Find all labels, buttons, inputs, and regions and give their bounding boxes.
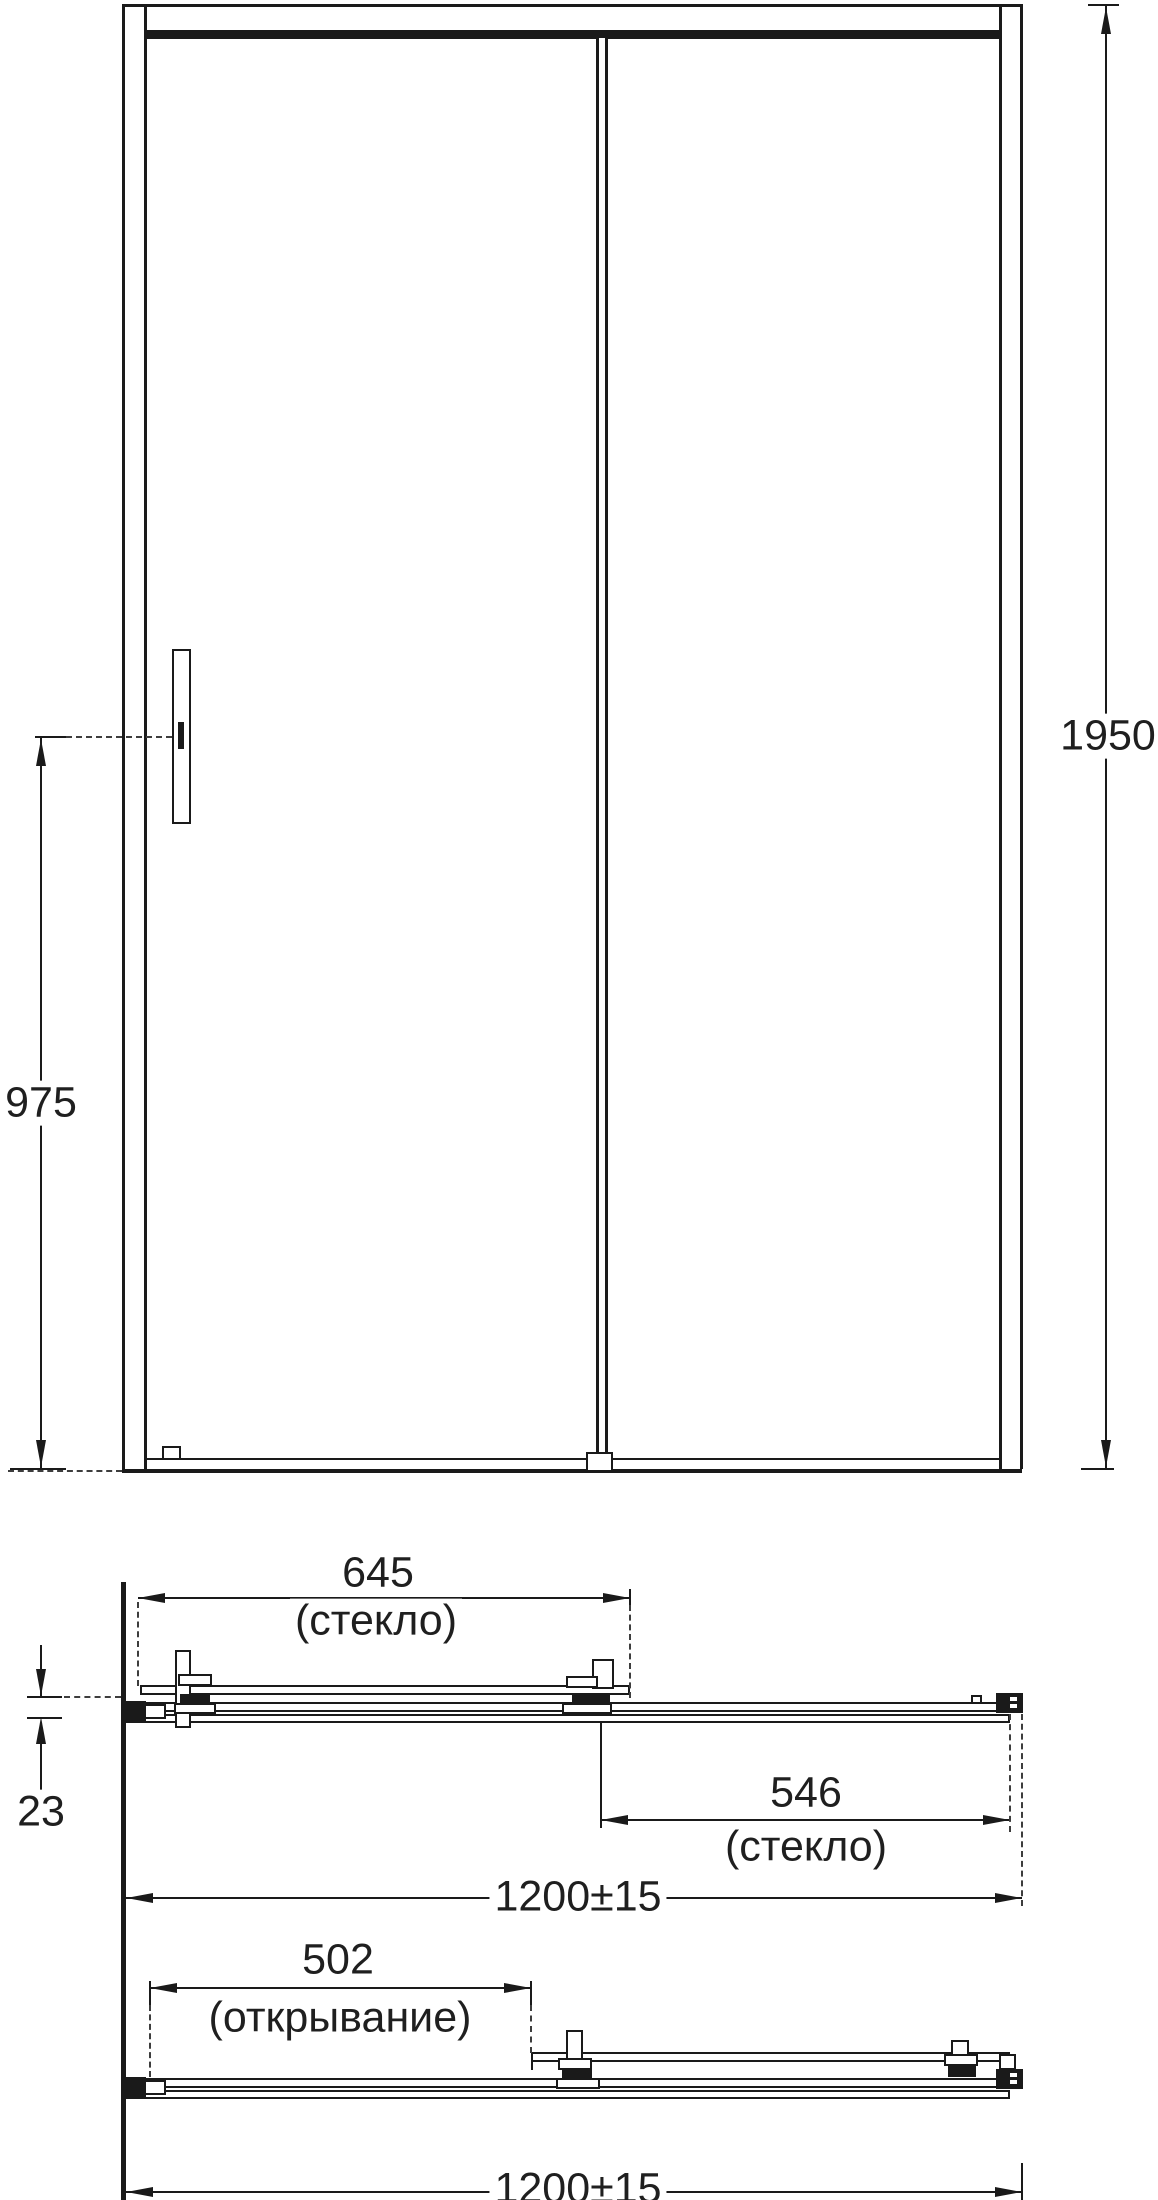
dim-502-arrow-right	[504, 1983, 531, 1993]
dim-1200-closed-arrow-right	[995, 1893, 1022, 1903]
dim-1200-open-arrow-left	[126, 2187, 153, 2197]
bottom-rail-top-line	[146, 1458, 999, 1460]
dim-645-ext-right-dashed	[629, 1605, 631, 1698]
dim-1200-open-arrow-right	[995, 2187, 1022, 2197]
dim-23-lower-line	[40, 1744, 42, 1790]
dim-label-546-note: (стекло)	[720, 1825, 892, 1870]
dim-645-ext-right-tick	[629, 1589, 631, 1605]
dim-23-arrow-down	[36, 1669, 46, 1696]
open-sliding-glass-edge-tick	[531, 2052, 533, 2070]
dim-502-ext-right-dashed	[530, 2005, 532, 2053]
dim-label-1200-closed: 1200±15	[489, 1875, 666, 1920]
dim-546-arrow-right	[983, 1815, 1010, 1825]
open-end-cap-notch-1	[1010, 2073, 1017, 2077]
dim-label-546: 546	[765, 1771, 847, 1816]
closed-fixed-glass-bar	[126, 1714, 1010, 1723]
dim-label-645-note: (стекло)	[290, 1599, 462, 1644]
left-wall-profile-outer-line	[122, 4, 125, 1472]
dim-23-upper-tick	[27, 1696, 62, 1698]
open-right-end-cap	[996, 2069, 1023, 2089]
right-wall-profile-inner-line	[999, 4, 1002, 1469]
closed-right-end-cap	[996, 1693, 1023, 1713]
dim-502-ext-left-solid	[149, 1981, 151, 2005]
open-fixed-glass-bar	[126, 2090, 1010, 2099]
dim-label-1950: 1950	[1055, 714, 1158, 759]
closed-left-roller-top	[178, 1674, 212, 1686]
dim-1950-bottom-tick	[1081, 1468, 1114, 1470]
open-end-step-block	[999, 2054, 1016, 2070]
closed-wall-bracket-clamp	[144, 1704, 166, 1719]
front-top-line	[122, 4, 1022, 7]
dim-label-645: 645	[337, 1551, 419, 1596]
handle-centerline-dashed	[66, 736, 172, 738]
panel-divider-profile	[596, 38, 608, 1459]
door-guide-foot-block	[162, 1446, 181, 1460]
closed-end-cap-notch-1	[1010, 1697, 1017, 1701]
closed-left-roller-clip	[175, 1650, 191, 1728]
door-handle-grip	[178, 722, 184, 749]
dim-546-line	[601, 1819, 1010, 1821]
open-right-roller-body	[948, 2065, 976, 2077]
closed-right-roller-base	[562, 1703, 612, 1714]
open-left-roller-base	[556, 2078, 600, 2089]
open-end-cap-notch-2	[1010, 2080, 1017, 2084]
dim-1200-closed-arrow-left	[126, 1893, 153, 1903]
left-wall-profile-inner-line	[144, 4, 147, 1472]
dim-546-ext-left-solid	[600, 1722, 602, 1828]
dim-502-ext-left-dashed	[149, 2005, 151, 2077]
dim-label-502: 502	[297, 1938, 379, 1983]
dim-546-ext-right-dashed	[1009, 1714, 1011, 1832]
dim-1950-arrow-up	[1101, 7, 1111, 34]
dim-546-arrow-left	[601, 1815, 628, 1825]
dim-645-arrow-left	[138, 1593, 165, 1603]
open-wall-bracket	[126, 2077, 146, 2098]
open-sliding-glass-bar	[531, 2052, 1010, 2062]
closed-end-step-block	[971, 1695, 982, 1704]
dim-23-reference-dashed	[64, 1696, 121, 1698]
divider-bottom-guide-block	[586, 1452, 613, 1472]
dim-label-502-note: (открывание)	[204, 1996, 477, 2041]
floor-reference-dashed	[8, 1470, 122, 1472]
wall-line	[121, 1582, 126, 2200]
top-track-bar	[147, 30, 999, 39]
dim-label-1200-open: 1200±15	[489, 2167, 666, 2200]
dim-645-ext-left-dashed	[137, 1602, 139, 1686]
dim-1200-closed-ext-right-dashed	[1021, 1714, 1023, 1906]
dim-23-arrow-up	[36, 1717, 46, 1744]
closed-end-cap-notch-2	[1010, 1704, 1017, 1708]
dim-1950-top-tick	[1088, 4, 1119, 6]
dim-975-arrow-down	[36, 1440, 46, 1467]
closed-wall-bracket	[126, 1701, 146, 1722]
bottom-rail-bottom-line	[122, 1469, 1022, 1473]
closed-left-roller-base	[174, 1703, 216, 1714]
dim-645-arrow-right	[603, 1593, 630, 1603]
dim-502-line	[150, 1987, 531, 1989]
right-wall-profile-outer-line	[1020, 4, 1023, 1469]
dim-label-23: 23	[12, 1790, 70, 1835]
dim-1950-arrow-down	[1101, 1440, 1111, 1467]
dim-label-975: 975	[0, 1081, 82, 1126]
closed-right-roller-top	[566, 1676, 598, 1688]
dim-975-arrow-up	[36, 739, 46, 766]
closed-sliding-glass-bar	[140, 1685, 630, 1695]
dim-502-ext-right-solid	[530, 1981, 532, 2005]
dim-1200-open-ext-right-tick	[1021, 2163, 1023, 2200]
technical-drawing-canvas: 1950 975 645 (стекло) 23 546 (стекло) 12…	[0, 0, 1158, 2200]
open-wall-bracket-clamp	[144, 2080, 166, 2095]
dim-502-arrow-left	[150, 1983, 177, 1993]
